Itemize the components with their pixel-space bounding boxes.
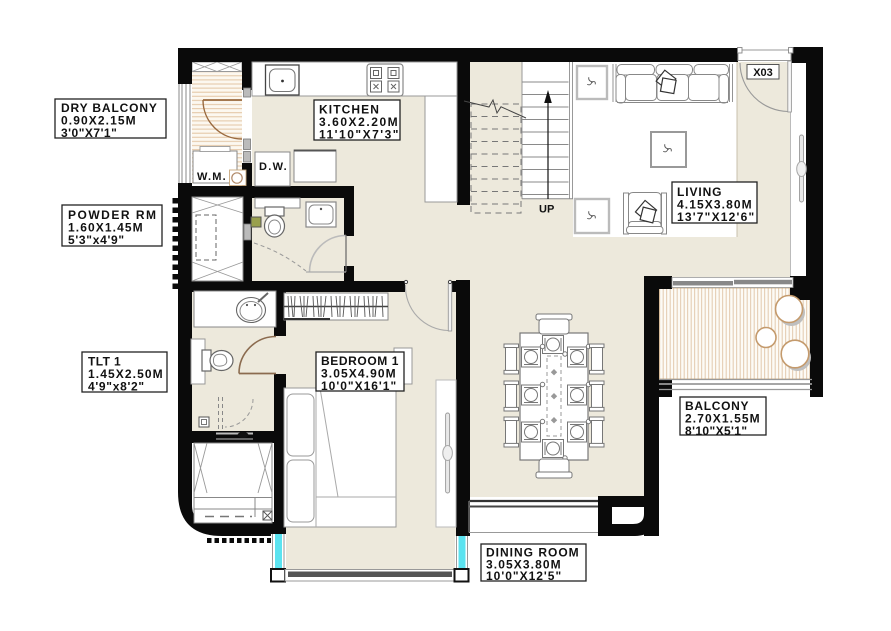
svg-text:11'10"X7'3": 11'10"X7'3" xyxy=(319,128,400,142)
svg-text:X03: X03 xyxy=(753,67,773,79)
svg-text:5'3"x4'9": 5'3"x4'9" xyxy=(68,233,125,247)
svg-text:8'10"X5'1": 8'10"X5'1" xyxy=(685,424,747,438)
svg-text:13'7"X12'6": 13'7"X12'6" xyxy=(677,210,755,224)
svg-text:D.W.: D.W. xyxy=(259,161,288,173)
svg-text:UP: UP xyxy=(539,204,554,216)
svg-text:4'9"x8'2": 4'9"x8'2" xyxy=(88,380,145,394)
svg-text:10'0"X12'5": 10'0"X12'5" xyxy=(486,569,562,583)
svg-text:W.M.: W.M. xyxy=(197,171,227,183)
svg-text:10'0"X16'1": 10'0"X16'1" xyxy=(321,379,397,393)
svg-text:3'0"X7'1": 3'0"X7'1" xyxy=(61,126,117,140)
